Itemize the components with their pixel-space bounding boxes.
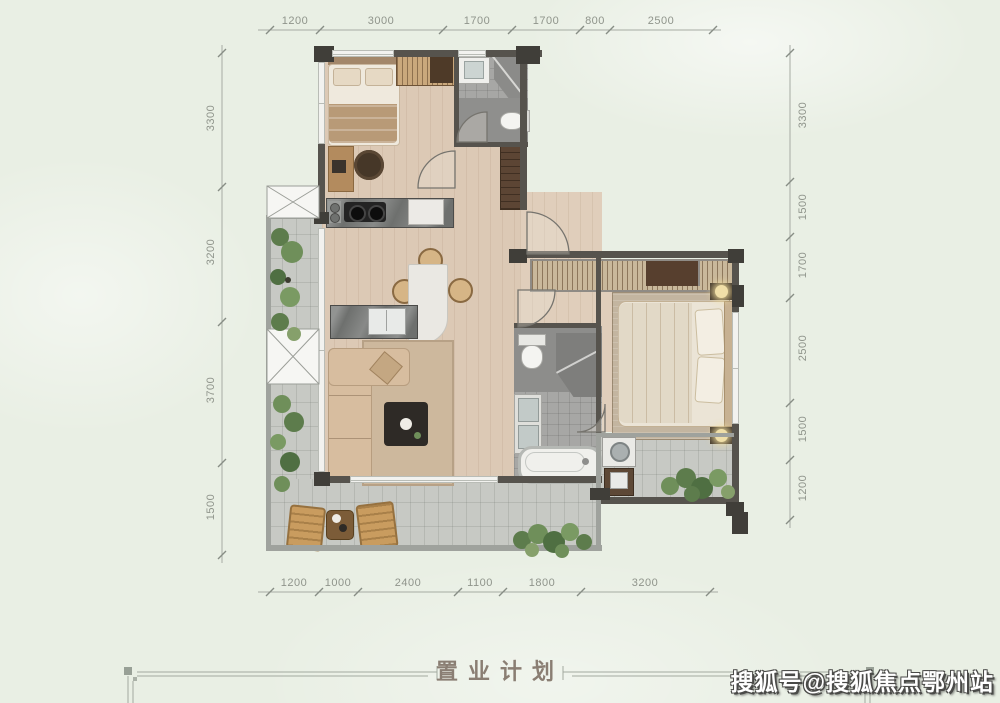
dim-label-top-6: 2500 [639,15,683,27]
kitchen-burner-dot-1 [330,203,340,213]
mbath-sink-1 [518,398,539,422]
dim-label-top-2: 3000 [359,15,403,27]
wall-master-bath-top [514,323,598,328]
dim-ticks-bottom [266,588,714,596]
column-top-left [314,46,334,62]
coffee-table-decor [400,418,412,430]
dim-label-right-5: 1500 [797,407,809,451]
dim-label-right-3: 1700 [797,243,809,287]
dim-label-top-4: 1700 [524,15,568,27]
mbath-bathtub-drain [582,458,589,465]
dim-label-left-3: 3700 [205,368,217,412]
hob-burner-left [349,205,366,222]
master-wardrobe [530,259,738,292]
master-pillow-top [694,308,725,356]
terrace-chair-2 [355,501,398,551]
ac-platform-1 [267,186,319,218]
window-bedroom2-top [332,50,394,57]
master-wardrobe-divider-2 [698,261,700,286]
wall-balcony-left [266,215,271,551]
master-wardrobe-dark-section [646,261,698,286]
dim-label-left-4: 1500 [205,485,217,529]
desk-laptop [332,160,346,173]
dim-label-bottom-6: 3200 [623,577,667,589]
washing-machine-door [610,442,630,462]
desk-chair [354,150,384,180]
bed2-blanket [329,104,397,143]
master-pillow-bottom [694,356,725,404]
kitchen-burner-dot-2 [330,213,340,223]
dim-label-top-1: 1200 [273,15,317,27]
balcony-basin [610,472,628,489]
dim-label-left-1: 3300 [205,96,217,140]
wall-master-balcony-bottom [596,497,739,504]
window-living-left [318,228,325,472]
island-sink [368,308,406,335]
dim-label-bottom-5: 1800 [520,577,564,589]
bed2-pillow-left [333,68,361,86]
dim-ticks-top [266,26,717,34]
wall-master-bath-divider [596,258,601,433]
dim-ticks-left [218,49,226,559]
dim-label-right-2: 1500 [797,185,809,229]
dining-stool-3 [448,278,473,303]
wall-right-left-wing [520,50,527,210]
column-bottom-left [314,472,330,486]
kitchen-fridge [408,199,444,225]
dim-label-top-5: 800 [573,15,617,27]
footer-frame-corner-left [124,667,132,675]
dim-label-right-4: 2500 [797,326,809,370]
window-master-right [732,312,739,424]
mbath-bathtub-inner [525,452,585,472]
dim-label-bottom-3: 2400 [386,577,430,589]
wall-master-balcony-window [600,433,734,437]
island-sink-divider [386,310,387,331]
window-terrace-door [350,476,498,483]
dim-label-bottom-4: 1100 [458,577,502,589]
column-master-right-mid [732,285,744,307]
column-top-right [516,46,540,64]
dim-label-top-3: 1700 [455,15,499,27]
nightstand-lamp-top [715,285,728,298]
mbath-toilet-bowl [521,345,543,369]
dim-label-right-1: 3300 [797,93,809,137]
wardrobe-bedroom2-dark-section [430,57,453,83]
wall-bath1-bottom [454,142,528,147]
bath1-sink [464,61,484,79]
page-title: 置业计划 [436,654,564,686]
dim-label-bottom-1: 1200 [272,577,316,589]
dim-label-right-6: 1200 [797,466,809,510]
terrace-table-cup [332,514,341,523]
master-bed-duvet [618,303,692,423]
floor-plan [262,42,758,562]
bed2-pillow-right [365,68,393,86]
column-master-top-left [509,249,527,263]
column-hanging-bottom-right [732,512,748,534]
column-terrace-right [590,488,610,500]
floorplan-page: { "title_block": { "title": "置业计划" }, "w… [0,0,1000,703]
wall-terrace-bottom [266,545,602,551]
watermark: 搜狐号@搜狐焦点鄂州站 [731,663,994,697]
wall-bath1-left [454,54,459,146]
dim-ticks-right [786,49,794,524]
hob-burner-right [368,205,385,222]
wall-master-top [511,251,739,258]
window-bath1-top [458,50,486,57]
terrace-table-kettle [339,524,347,532]
column-left-mid [314,212,329,224]
column-master-top-right [728,249,744,263]
window-bedroom2-left [318,62,325,144]
footer-frame-corner-left-dot [133,677,137,681]
dim-label-left-2: 3200 [205,230,217,274]
coffee-table-plant [414,432,421,439]
dim-label-bottom-2: 1000 [316,577,360,589]
